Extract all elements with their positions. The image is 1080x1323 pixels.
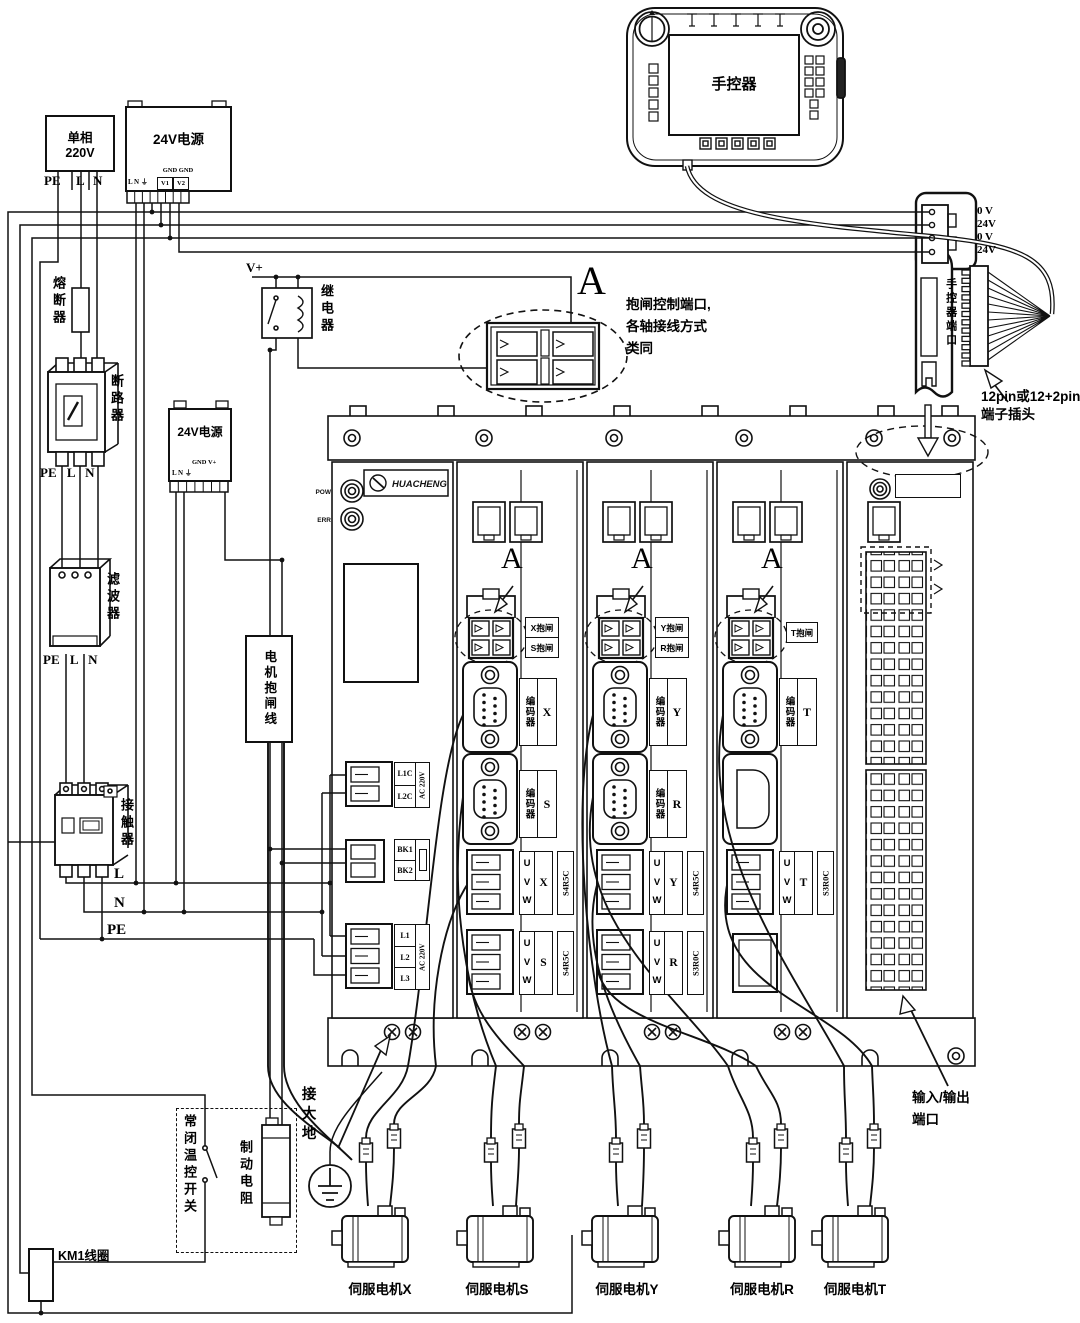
brand-logo-text: HUACHENG [392, 479, 448, 490]
drive2-enc2-label: 编码器 [650, 771, 668, 837]
ground-label: 接大地 [299, 1086, 316, 1145]
drive2-uvw1-plate: U V W Y [649, 851, 683, 915]
drive1-encoder2-plate: 编码器 S [519, 770, 557, 838]
port-pin4-label: 24V [977, 244, 996, 257]
drive1-model2-label: S4R5C [557, 931, 574, 995]
drive1-axis1-letter: X [538, 679, 556, 745]
io-port-note2: 端口 [912, 1112, 939, 1128]
drive2-brake1-label: Y抱闸 [655, 617, 689, 638]
pendant-screen: 手控器 [668, 34, 800, 136]
drive1-uvw2-plate: U V W S [519, 931, 553, 995]
mains-line1: 单相 [67, 127, 92, 146]
io-label-plate [895, 474, 961, 498]
drive2-axis1-letter: Y [668, 679, 686, 745]
detail-a-letter: A [577, 261, 606, 301]
drive-display-panel [343, 563, 419, 683]
detail-note1: 抱闸控制端口, [626, 297, 711, 313]
mains-n-label: N [93, 174, 102, 189]
l123-label-plate: L1 L2 L3 AC 220V [394, 924, 430, 990]
drive3-model1-label: S3R0C [817, 851, 834, 915]
filter-symbol [50, 559, 110, 646]
plug-note-line1: 12pin或12+2pin [981, 389, 1080, 405]
l1c-label: L1C [395, 763, 415, 786]
fuse-label: 熔断器 [50, 276, 65, 327]
pendant-title: 手控器 [711, 76, 756, 93]
port-pin2-label: 24V [977, 218, 996, 231]
brake-resistor-label: 制动电阻 [237, 1140, 252, 1208]
io-port-note1: 输入/输出 [912, 1090, 970, 1106]
plug-note-line2: 端子插头 [981, 407, 1035, 423]
drive1-uvw2-label: U V W [520, 932, 535, 994]
drive2-a-letter: A [631, 544, 653, 574]
drive2-axis2-letter: R [668, 771, 686, 837]
psu-24v-mid-title: 24V电源 [168, 426, 232, 440]
drive2-model1-label: S4R5C [687, 851, 704, 915]
l1-label: L1 [395, 925, 415, 947]
motor-s-label: 伺服电机S [452, 1282, 542, 1298]
motor-r-label: 伺服电机R [717, 1282, 807, 1298]
contactor-label: 接触器 [118, 798, 133, 849]
drive1-uvw1-plate: U V W X [519, 851, 553, 915]
breaker-peln-label: PE L N [40, 466, 94, 481]
drive2-brake2-label: R抱闸 [655, 637, 689, 658]
bk2-label: BK2 [395, 861, 415, 881]
bus-pe-label: PE [107, 922, 126, 939]
drive2-uvw2-axis: R [665, 932, 682, 994]
motor-brake-line-box: 电机抱闸线 [245, 635, 293, 743]
mains-l-label: L [76, 174, 85, 189]
fuse-symbol [72, 288, 89, 332]
pendant-port-label: 手控器端口 [944, 278, 957, 348]
detail-note3: 类同 [626, 341, 653, 357]
l1c-l2c-label-plate: L1C L2C AC 220V [394, 762, 430, 808]
drive1-enc-label: 编码器 [520, 679, 538, 745]
drive3-brake1-label: T抱闸 [786, 622, 818, 643]
cable-plugs [360, 1124, 881, 1162]
drive3-uvw1-axis: T [795, 852, 812, 914]
psu1-lng-label: L N ⏚ [128, 178, 148, 186]
plug-arrowhead [985, 370, 1002, 388]
motor-y-label: 伺服电机Y [582, 1282, 672, 1298]
drive1-uvw1-label: U V W [520, 852, 535, 914]
drive1-a-letter: A [501, 544, 523, 574]
ac220v-label-2: AC 220V [416, 925, 429, 989]
wiring-diagram: POW ERR HUACHENG 单相 220V PE L N 24V电源 GN… [0, 0, 1080, 1323]
mains-supply-box: 单相 220V [45, 115, 115, 172]
detail-note2: 各轴接线方式 [626, 319, 707, 335]
drive1-enc2-label: 编码器 [520, 771, 538, 837]
drive3-encoder1-plate: 编码器 T [779, 678, 817, 746]
drive1-model1-label: S4R5C [557, 851, 574, 915]
psu-24v-top-title: 24V电源 [125, 132, 232, 148]
psu1-v2-label: V2 [173, 177, 189, 190]
bk-resistor-glyph [416, 840, 429, 880]
l3-label: L3 [395, 968, 415, 989]
thermal-switch-label: 常闭温控开关 [181, 1114, 196, 1216]
drive3-axis1-letter: T [798, 679, 816, 745]
port-pin3-label: 0 V [977, 231, 993, 244]
km1-coil-label: KM1线圈 [58, 1249, 109, 1263]
pow-led-label: POW [315, 489, 331, 496]
drive3-uvw1-plate: U V W T [779, 851, 813, 915]
psu1-gnd-label: GND GND [150, 167, 206, 174]
brake-port-detail [459, 310, 627, 402]
drive1-brake1-label: X抱闸 [525, 617, 559, 638]
drive3-a-letter: A [761, 544, 783, 574]
psu1-v1-label: V1 [157, 177, 173, 190]
drive2-uvw1-label: U V W [650, 852, 665, 914]
err-led-label: ERR [317, 517, 331, 524]
bk-label-plate: BK1 BK2 [394, 839, 430, 881]
breaker-label: 断路器 [108, 374, 123, 425]
l2c-label: L2C [395, 786, 415, 808]
drive3-enc-label: 编码器 [780, 679, 798, 745]
motor-t-label: 伺服电机T [810, 1282, 900, 1298]
bus-n-label: N [114, 895, 125, 912]
l2-label: L2 [395, 947, 415, 969]
servo-motors [332, 1206, 888, 1267]
drive1-uvw2-axis: S [535, 932, 552, 994]
drive1-brake2-label: S抱闸 [525, 637, 559, 658]
earth-ground-symbol [309, 1165, 351, 1207]
relay-label: 继电器 [318, 284, 333, 335]
drive2-uvw1-axis: Y [665, 852, 682, 914]
drive2-encoder2-plate: 编码器 R [649, 770, 687, 838]
drive1-axis2-letter: S [538, 771, 556, 837]
filter-label: 滤波器 [104, 572, 119, 623]
bk1-label: BK1 [395, 840, 415, 861]
drive3-uvw1-label: U V W [780, 852, 795, 914]
motor-brake-line-label: 电机抱闸线 [262, 650, 276, 728]
motor-x-label: 伺服电机X [335, 1282, 425, 1298]
relay-symbol [262, 288, 312, 338]
mains-line2: 220V [65, 146, 94, 160]
drive1-encoder1-plate: 编码器 X [519, 678, 557, 746]
drive2-encoder1-plate: 编码器 Y [649, 678, 687, 746]
drive2-uvw2-label: U V W [650, 932, 665, 994]
relay-vplus-label: V+ [246, 261, 263, 276]
port-pin1-label: 0 V [977, 205, 993, 218]
ac220v-label-1: AC 220V [416, 763, 429, 807]
psu2-gnd-label: GND V+ [192, 459, 216, 466]
drive2-uvw2-plate: U V W R [649, 931, 683, 995]
drive2-model2-label: S3R0C [687, 931, 704, 995]
mains-pe-label: PE [44, 174, 61, 189]
bk-connector [346, 840, 384, 882]
psu2-lng-label: L N ⏚ [172, 469, 192, 477]
filter-peln-label: PE L N [43, 653, 97, 668]
drive1-uvw1-axis: X [535, 852, 552, 914]
drive2-enc-label: 编码器 [650, 679, 668, 745]
bus-l-label: L [114, 866, 124, 883]
km1-coil-box [28, 1248, 54, 1302]
